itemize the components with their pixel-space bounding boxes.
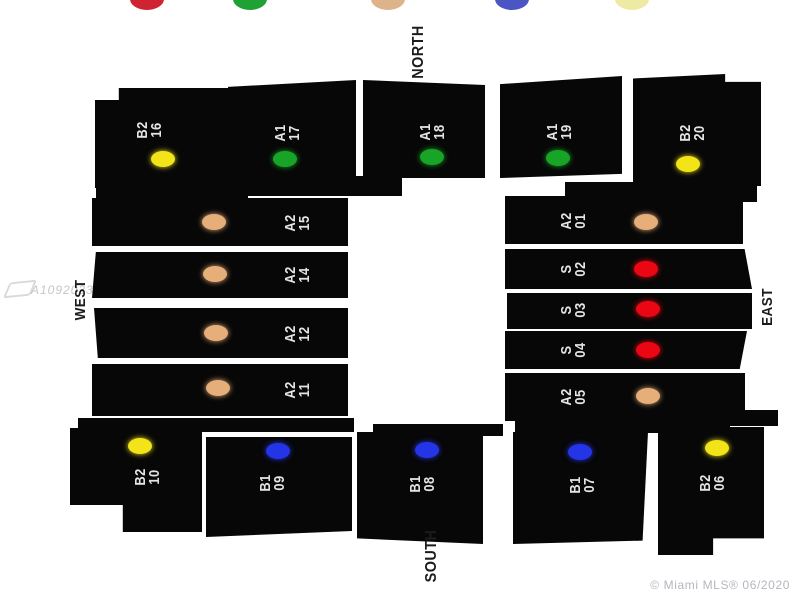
unit-block-b2-16: B216 (95, 88, 235, 188)
unit-05-status-dot (636, 388, 660, 404)
unit-block-b1-09: B109 (206, 437, 352, 537)
unit-number-text: 06 (713, 475, 727, 490)
unit-block-a2-15: A215 (92, 198, 348, 246)
unit-number-text: 10 (148, 469, 162, 484)
unit-06-status-dot (705, 440, 729, 456)
unit-label: B210 (131, 458, 165, 496)
unit-label: B206 (696, 464, 730, 502)
unit-block-s-04: S04 (505, 331, 747, 369)
unit-label: A118 (416, 113, 450, 151)
unit-label: A201 (557, 202, 591, 240)
unit-block-b1-08: B108 (357, 432, 483, 544)
unit-number-text: 20 (693, 125, 707, 140)
unit-block-s-03: S03 (507, 293, 752, 329)
unit-number-text: 05 (574, 389, 588, 404)
unit-number-text: 18 (433, 124, 447, 139)
unit-20-status-dot (676, 156, 700, 172)
unit-number-text: 03 (574, 302, 588, 317)
compass-south-label: SOUTH (423, 525, 443, 588)
unit-10-status-dot (128, 438, 152, 454)
unit-block-b2-06: B206 (658, 427, 764, 555)
unit-block-a2-12: A212 (94, 308, 348, 358)
legend-blue-dot (495, 0, 529, 10)
unit-number-text: 12 (298, 326, 312, 341)
unit-08-status-dot (415, 442, 439, 458)
unit-label: A119 (543, 113, 577, 151)
unit-label: B216 (133, 111, 167, 149)
unit-number-text: 19 (560, 124, 574, 139)
unit-number-text: 08 (423, 476, 437, 491)
unit-label: B220 (676, 114, 710, 152)
unit-label: A214 (281, 256, 315, 294)
unit-04-status-dot (636, 342, 660, 358)
unit-label: A211 (281, 371, 315, 409)
floor-plan: NORTH SOUTH WEST EAST A1092033 © Miami M… (0, 0, 800, 600)
unit-16-status-dot (151, 151, 175, 167)
unit-number-text: 11 (298, 383, 312, 397)
legend-tan-dot (371, 0, 405, 10)
unit-label: A117 (271, 114, 305, 152)
unit-number-text: 15 (298, 215, 312, 230)
unit-block-a1-17: A117 (228, 80, 356, 178)
unit-label: B109 (256, 464, 290, 502)
unit-block-a2-11: A211 (92, 364, 348, 416)
unit-block-a2-01: A201 (505, 196, 743, 244)
unit-block-a2-05: A205 (505, 373, 745, 421)
unit-label: A205 (557, 378, 591, 416)
unit-block-b2-20: B220 (633, 74, 761, 186)
unit-block-b1-07: B107 (513, 432, 648, 544)
unit-19-status-dot (546, 150, 570, 166)
unit-number-text: 17 (288, 125, 302, 140)
unit-label: S04 (557, 331, 591, 369)
unit-17-status-dot (273, 151, 297, 167)
legend-yellow-dot (615, 0, 649, 10)
unit-label: B108 (406, 465, 440, 503)
unit-block-b2-10: B210 (70, 428, 202, 532)
unit-number-text: 14 (298, 267, 312, 282)
unit-label: S02 (557, 250, 591, 288)
unit-number-text: 02 (574, 261, 588, 276)
unit-number-text: 07 (583, 477, 597, 492)
unit-label: B107 (566, 466, 600, 504)
unit-block-a1-18: A118 (363, 78, 485, 178)
unit-block-a1-19: A119 (500, 76, 622, 178)
unit-block-s-02: S02 (505, 249, 752, 289)
unit-09-status-dot (266, 443, 290, 459)
legend-red-dot (130, 0, 164, 10)
unit-12-status-dot (204, 325, 228, 341)
unit-15-status-dot (202, 214, 226, 230)
legend-green-dot (233, 0, 267, 10)
unit-block-a2-14: A214 (92, 252, 348, 298)
unit-07-status-dot (568, 444, 592, 460)
unit-18-status-dot (420, 149, 444, 165)
unit-label: A215 (281, 204, 315, 242)
unit-number-text: 16 (150, 122, 164, 137)
unit-14-status-dot (203, 266, 227, 282)
unit-03-status-dot (636, 301, 660, 317)
building-wing-bar (230, 176, 402, 196)
unit-11-status-dot (206, 380, 230, 396)
compass-north-label: NORTH (410, 21, 430, 84)
compass-east-label: EAST (759, 280, 779, 334)
unit-number-text: 04 (574, 342, 588, 357)
compass-west-label: WEST (72, 273, 92, 327)
unit-02-status-dot (634, 261, 658, 277)
unit-number-text: 01 (574, 213, 588, 228)
unit-01-status-dot (634, 214, 658, 230)
unit-label: S03 (557, 291, 591, 329)
copyright-watermark: © Miami MLS® 06/2020 (650, 578, 790, 592)
unit-number-text: 09 (273, 475, 287, 490)
unit-label: A212 (281, 315, 315, 353)
